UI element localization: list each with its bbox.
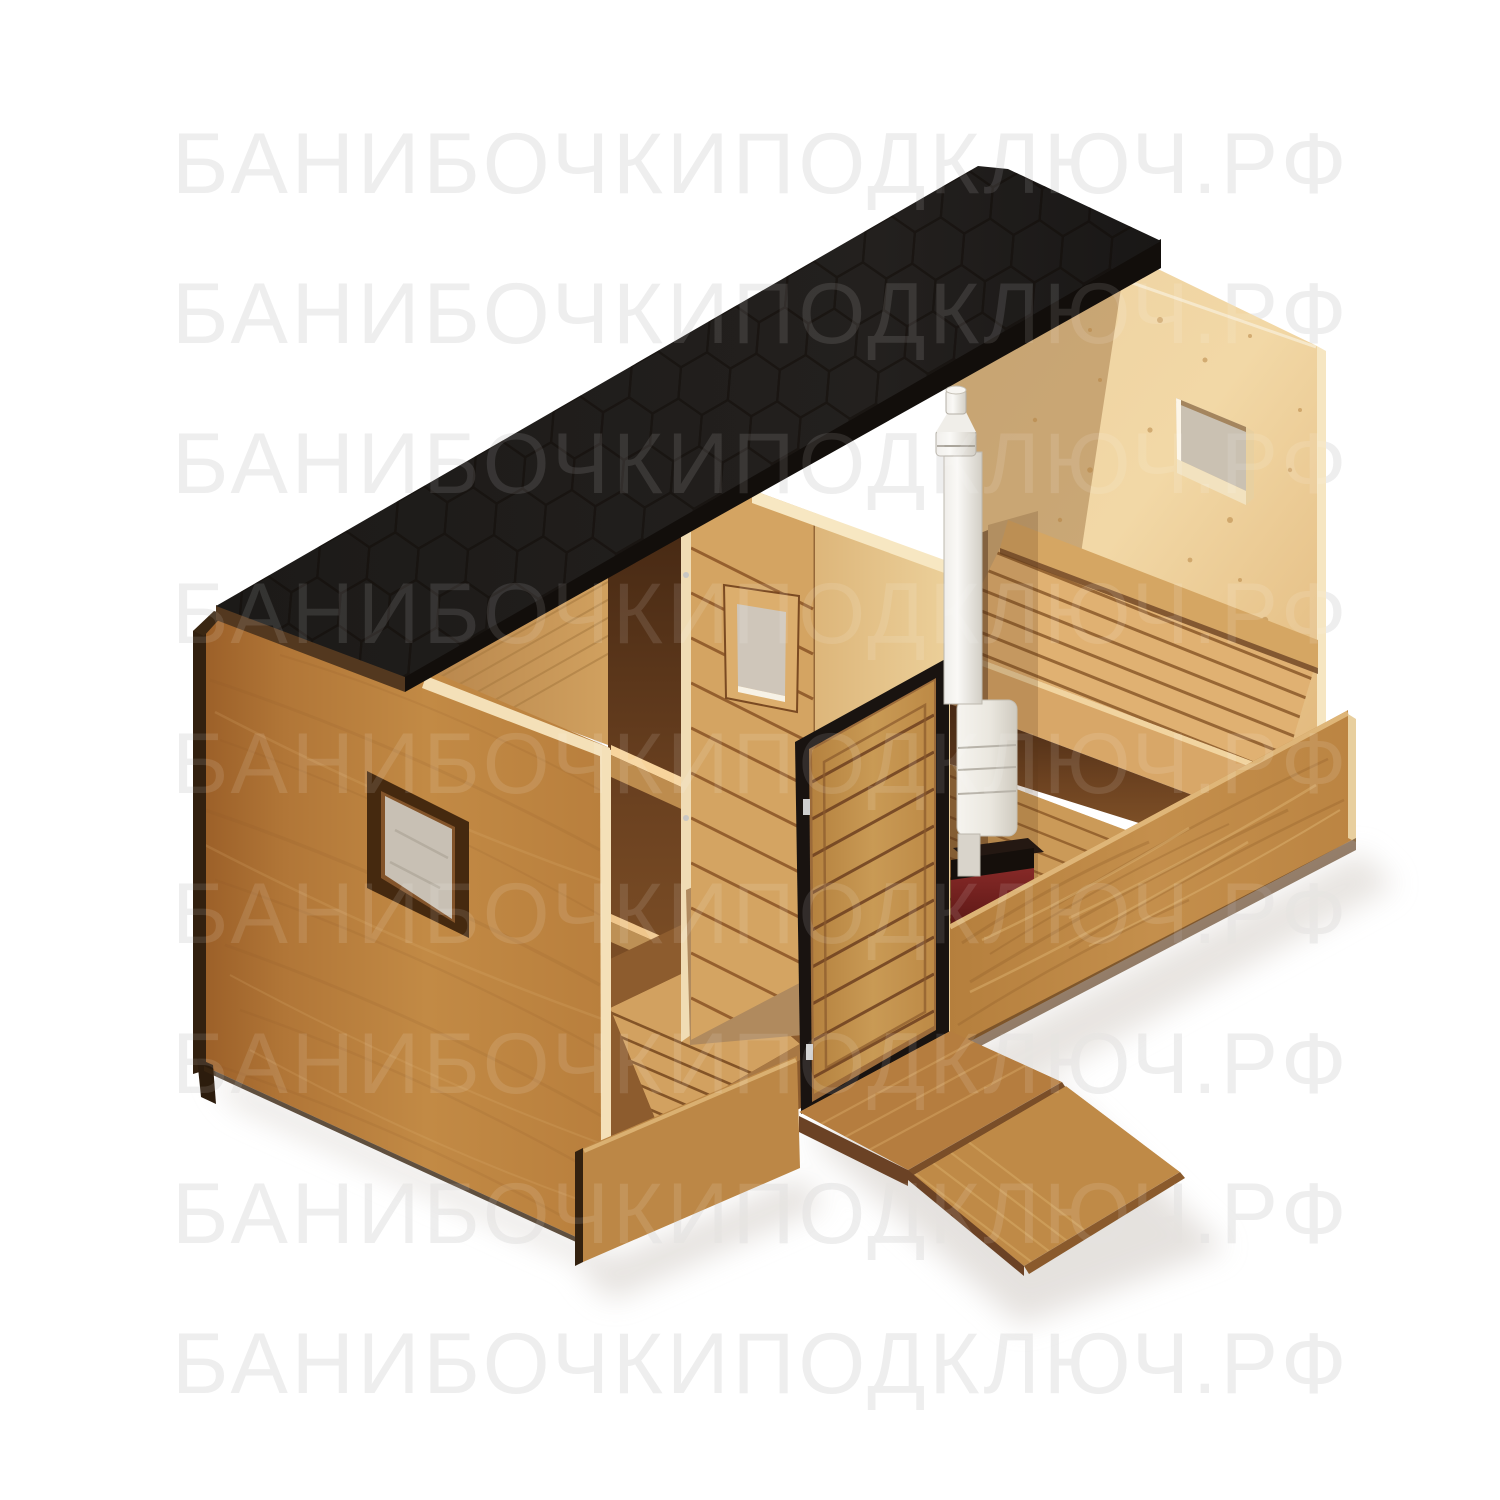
svg-text:БАНИБОЧКИПОДКЛЮЧ.РФ: БАНИБОЧКИПОДКЛЮЧ.РФ (172, 1016, 1350, 1112)
svg-text:БАНИБОЧКИПОДКЛЮЧ.РФ: БАНИБОЧКИПОДКЛЮЧ.РФ (172, 416, 1350, 512)
svg-text:БАНИБОЧКИПОДКЛЮЧ.РФ: БАНИБОЧКИПОДКЛЮЧ.РФ (172, 116, 1350, 212)
svg-text:БАНИБОЧКИПОДКЛЮЧ.РФ: БАНИБОЧКИПОДКЛЮЧ.РФ (172, 716, 1350, 812)
svg-text:БАНИБОЧКИПОДКЛЮЧ.РФ: БАНИБОЧКИПОДКЛЮЧ.РФ (172, 1316, 1350, 1412)
svg-text:БАНИБОЧКИПОДКЛЮЧ.РФ: БАНИБОЧКИПОДКЛЮЧ.РФ (172, 866, 1350, 962)
svg-text:БАНИБОЧКИПОДКЛЮЧ.РФ: БАНИБОЧКИПОДКЛЮЧ.РФ (172, 266, 1350, 362)
svg-text:БАНИБОЧКИПОДКЛЮЧ.РФ: БАНИБОЧКИПОДКЛЮЧ.РФ (172, 1166, 1350, 1262)
svg-text:БАНИБОЧКИПОДКЛЮЧ.РФ: БАНИБОЧКИПОДКЛЮЧ.РФ (172, 566, 1350, 662)
